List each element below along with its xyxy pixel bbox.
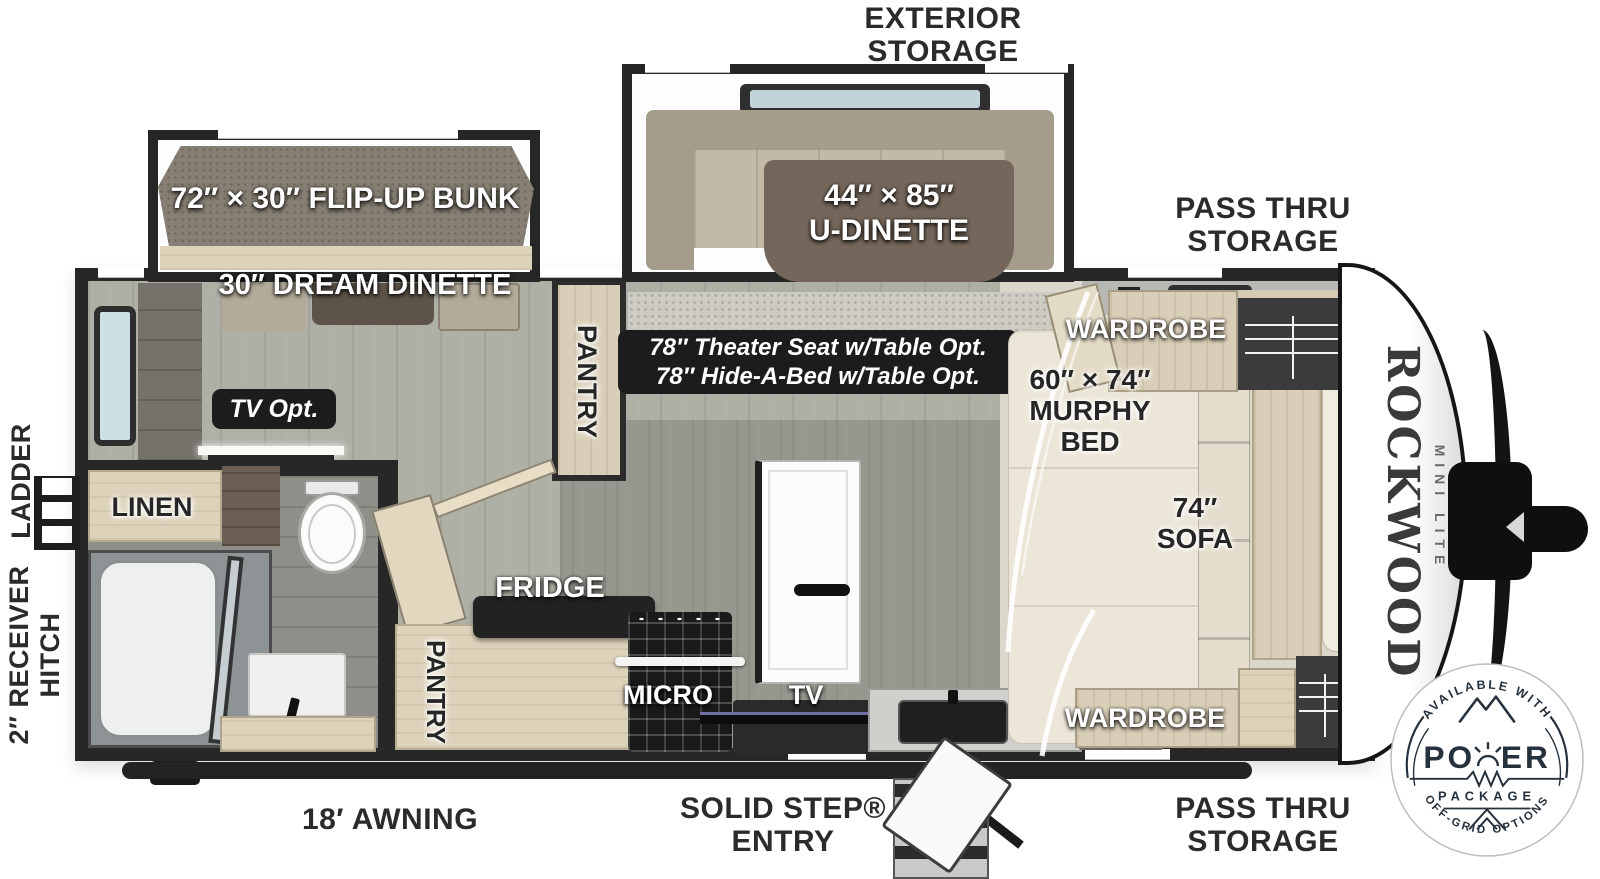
shelf-unit-top bbox=[1238, 290, 1350, 390]
pass-thru-top-line2: STORAGE bbox=[1113, 225, 1413, 258]
rear-cabinet bbox=[138, 283, 202, 461]
tv-opt-badge: TV Opt. bbox=[212, 389, 336, 429]
dream-dinette-label: 30″ DREAM DINETTE bbox=[165, 269, 565, 302]
badge-package-text: PACKAGE bbox=[1438, 789, 1536, 804]
brand-name: ROCKWOOD bbox=[1380, 312, 1428, 712]
awning-label: 18′ AWNING bbox=[240, 803, 540, 836]
toilet-seat-line bbox=[308, 504, 356, 564]
fridge-label: FRIDGE bbox=[450, 572, 650, 605]
window-slit bbox=[1128, 268, 1222, 278]
exterior-storage-label: EXTERIOR STORAGE bbox=[793, 2, 1093, 68]
pass-thru-top-line1: PASS THRU bbox=[1113, 192, 1413, 225]
u-dinette-label-line2: U-DINETTE bbox=[734, 213, 1044, 248]
entry-door-panel-line bbox=[768, 470, 848, 670]
entry-door-handle bbox=[794, 584, 850, 596]
wardrobe-bottom-label: WARDROBE bbox=[1045, 703, 1245, 734]
sofa-label-line2: SOFA bbox=[1135, 523, 1255, 554]
tv-screen bbox=[700, 712, 868, 724]
u-dinette-slide-window bbox=[645, 64, 730, 73]
wardrobe-top-label: WARDROBE bbox=[1046, 314, 1246, 345]
pass-thru-top-label: PASS THRU STORAGE bbox=[1113, 192, 1413, 258]
vanity-counter bbox=[220, 716, 376, 752]
badge-power-right: ER bbox=[1501, 739, 1551, 775]
sofa-label: 74″ SOFA bbox=[1135, 492, 1255, 554]
brand-series: MINI LITE bbox=[1428, 358, 1448, 658]
solid-step-line2: ENTRY bbox=[633, 825, 933, 858]
micro-label: MICRO bbox=[588, 680, 748, 711]
pass-thru-bottom-line2: STORAGE bbox=[1113, 825, 1413, 858]
sofa-label-line1: 74″ bbox=[1135, 492, 1255, 523]
bunk-ledge bbox=[160, 246, 532, 270]
power-package-badge: AVAILABLE WITH PO ER PACKAGE OFF-GRID OP… bbox=[1388, 661, 1586, 859]
murphy-bed-label-line1: 60″ × 74″ bbox=[990, 364, 1190, 395]
u-dinette-label: 44″ × 85″ U-DINETTE bbox=[734, 178, 1044, 248]
ladder-label: LADDER bbox=[5, 415, 35, 547]
murphy-bed-label-line3: BED bbox=[990, 426, 1190, 457]
options-badge-line2: 78″ Hide-A-Bed w/Table Opt. bbox=[618, 362, 1018, 391]
murphy-bed-label-line2: MURPHY bbox=[990, 395, 1190, 426]
tv-label: TV bbox=[746, 680, 866, 711]
murphy-bed-label: 60″ × 74″ MURPHY BED bbox=[990, 364, 1190, 457]
tv-opt-label: TV Opt. bbox=[212, 395, 336, 424]
rear-window bbox=[94, 306, 136, 446]
bedroom-drawers bbox=[1238, 668, 1296, 748]
kitchen-sink bbox=[898, 700, 1008, 744]
range-knobs bbox=[632, 614, 728, 624]
bunk-slide-window bbox=[218, 130, 458, 139]
u-dinette-skylight-glass bbox=[750, 90, 980, 108]
solid-step-line1: SOLID STEP® bbox=[633, 792, 933, 825]
awning-rail bbox=[122, 762, 1252, 779]
floorplan-canvas: 72″ × 30″ FLIP-UP BUNK 30″ DREAM DINETTE… bbox=[0, 0, 1600, 879]
tv-optional-screen bbox=[198, 446, 344, 455]
linen-label: LINEN bbox=[72, 492, 232, 523]
flip-up-bunk-label: 72″ × 30″ FLIP-UP BUNK bbox=[155, 182, 535, 216]
window-slit bbox=[1085, 749, 1170, 760]
hitch-tongue bbox=[1524, 506, 1588, 552]
pantry-main-label: PANTRY bbox=[574, 303, 602, 461]
exterior-storage-line2: STORAGE bbox=[793, 35, 1093, 68]
exterior-storage-line1: EXTERIOR bbox=[793, 2, 1093, 35]
hitch-coupler bbox=[1506, 512, 1524, 542]
pantry-kitchen-label: PANTRY bbox=[423, 617, 451, 767]
pass-thru-bottom-label: PASS THRU STORAGE bbox=[1113, 792, 1413, 858]
options-badge-line1: 78″ Theater Seat w/Table Opt. bbox=[618, 333, 1018, 362]
range-towel-bar bbox=[615, 657, 745, 666]
options-badge: 78″ Theater Seat w/Table Opt. 78″ Hide-A… bbox=[618, 330, 1018, 394]
receiver-hitch-label-line1: 2″ RECEIVER bbox=[3, 553, 33, 757]
sink-faucet bbox=[948, 690, 958, 704]
badge-power-left: PO bbox=[1423, 739, 1475, 775]
solid-step-entry-label: SOLID STEP® ENTRY bbox=[633, 792, 933, 858]
window-slit bbox=[98, 268, 144, 278]
u-dinette-sofa-left bbox=[646, 110, 694, 270]
u-dinette-label-line1: 44″ × 85″ bbox=[734, 178, 1044, 213]
pass-thru-bottom-line1: PASS THRU bbox=[1113, 792, 1413, 825]
u-dinette-sofa-back bbox=[646, 110, 1054, 152]
shower-tub bbox=[98, 560, 218, 738]
receiver-hitch-label-line2: HITCH bbox=[34, 553, 64, 757]
